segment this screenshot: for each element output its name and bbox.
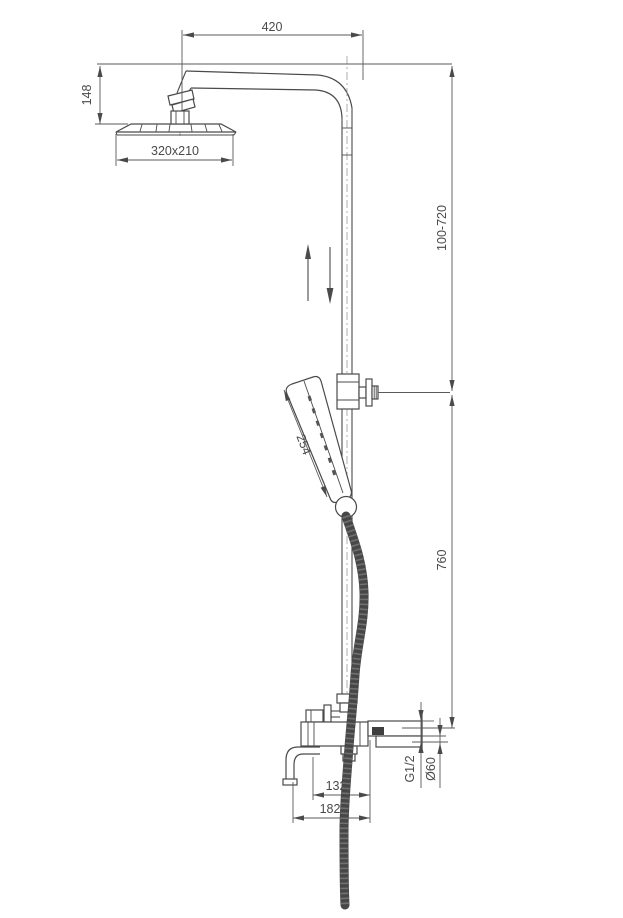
dim-label-g12: G1/2 [403,755,417,782]
up-arrow-icon [305,244,311,259]
dim-head-size: 320x210 [116,134,233,166]
bracket-knob-stem [359,387,366,398]
mixer-handle [306,710,323,722]
height-adjust-indicator [305,244,333,304]
dim-label-d60: Ø60 [424,757,438,781]
valve-body [301,722,368,746]
head-connector-stem [171,111,189,124]
dim-lower-height: 760 [435,395,455,728]
dim-label-100-720: 100-720 [435,205,449,251]
wall-connection [368,714,455,749]
technical-drawing-canvas: 420 148 320x210 100-720 760 254 [0,0,623,918]
dim-head-offset: 148 [80,66,128,124]
wall-escutcheon [376,736,422,747]
dim-escutcheon-diameter: Ø60 [424,718,443,788]
shower-system-drawing: 420 148 320x210 100-720 760 254 [0,0,623,918]
bath-spout [286,747,320,779]
union-seal [372,727,384,735]
slider-bracket [337,374,450,409]
down-arrow-icon [327,288,334,304]
spout-outlet [283,779,297,785]
dim-label-148: 148 [80,85,94,106]
dim-adjustable-height: 100-720 [435,66,455,391]
dim-arm-reach: 420 [182,20,363,110]
diverter-knob [324,705,331,722]
dim-label-320x210: 320x210 [151,144,199,158]
bracket-knob [366,379,372,406]
shower-arm [168,71,352,124]
dim-label-760: 760 [435,550,449,571]
dim-label-420: 420 [262,20,283,34]
dim-label-182: 182 [320,802,341,816]
